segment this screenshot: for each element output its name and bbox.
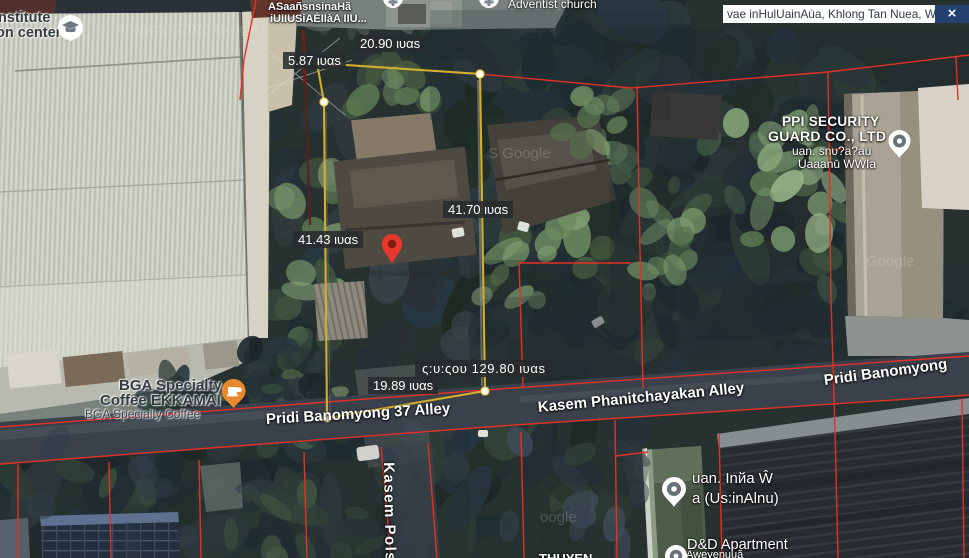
svg-text:oogle: oogle xyxy=(540,509,577,526)
svg-text:S Google: S Google xyxy=(488,145,551,162)
svg-text:Imagery ©2025 Google: Imagery ©2025 Google xyxy=(118,21,258,36)
svg-text:Google: Google xyxy=(866,253,914,270)
